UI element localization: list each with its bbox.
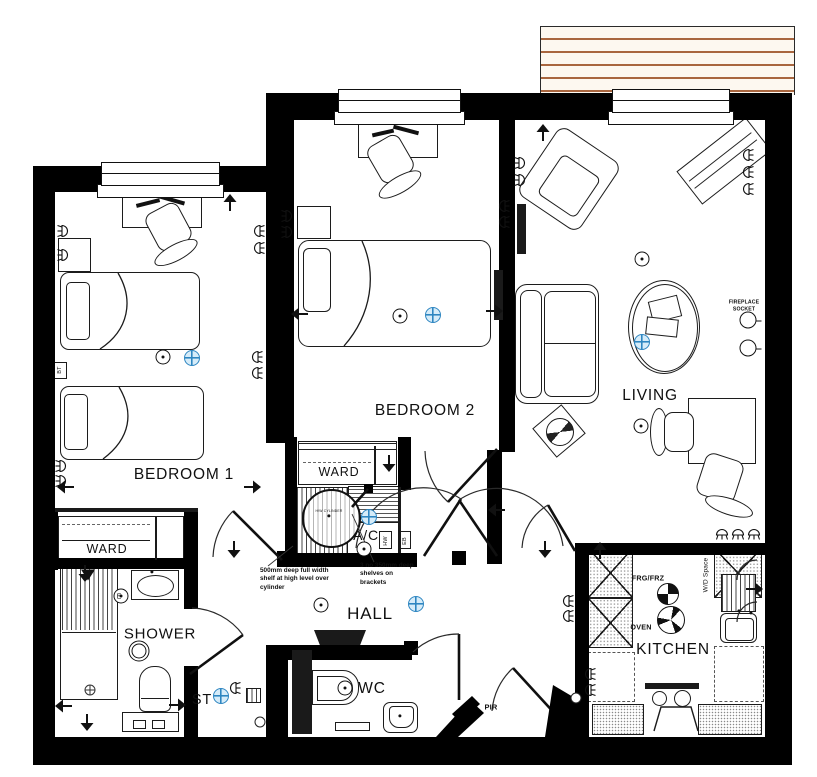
fixture-dot bbox=[398, 714, 401, 717]
wall-lamp-icon bbox=[249, 366, 263, 380]
room-label-bedroom2: BEDROOM 2 bbox=[375, 402, 475, 420]
wall-lamp-icon bbox=[560, 594, 574, 608]
smoke-detector-icon bbox=[425, 307, 441, 323]
wall-lamp-icon bbox=[747, 526, 761, 540]
wall-lamp-icon bbox=[496, 215, 510, 229]
wall-lamp-icon bbox=[731, 526, 745, 540]
fixture-dot bbox=[737, 609, 740, 612]
room-label-hall: HALL bbox=[347, 604, 393, 624]
fireplace-note-line: SOCKET bbox=[729, 306, 759, 313]
wall-lamp-icon bbox=[496, 199, 510, 213]
extractor-fan-icon bbox=[129, 641, 150, 662]
fixture-dot bbox=[327, 514, 330, 517]
label-cylinder: H/W CYLINDER bbox=[315, 509, 342, 513]
floor-plan: BEDROOM 1BEDROOM 2LIVINGKITCHENHALLSHOWE… bbox=[0, 0, 817, 777]
ceiling-light-icon bbox=[634, 419, 649, 434]
socket-arrow-icon bbox=[484, 301, 504, 321]
label-hw: HW bbox=[383, 536, 389, 546]
wall-lamp-icon bbox=[582, 683, 596, 697]
wall-lamp-icon bbox=[281, 209, 295, 223]
wall-lamp-icon bbox=[514, 156, 528, 170]
room-label-bedroom1: BEDROOM 1 bbox=[134, 466, 234, 484]
wall-lamp-icon bbox=[227, 681, 241, 695]
socket-arrow-icon bbox=[224, 539, 244, 559]
socket-arrow-icon bbox=[242, 477, 262, 497]
wall-lamp-icon bbox=[55, 459, 69, 473]
socket-arrow-icon bbox=[54, 696, 74, 716]
fireplace-socket-icon bbox=[740, 312, 757, 329]
label-bt: BT bbox=[57, 366, 63, 373]
extractor-fan-icon bbox=[657, 606, 685, 634]
wall-lamp-icon bbox=[57, 248, 71, 262]
socket-arrow-icon bbox=[75, 563, 95, 583]
wall-lamp-icon bbox=[249, 350, 263, 364]
ceiling-light-icon bbox=[338, 681, 353, 696]
wall-lamp-icon bbox=[281, 225, 295, 239]
smoke-detector-icon bbox=[634, 334, 650, 350]
wall-lamp-icon bbox=[740, 182, 754, 196]
ceiling-light-icon bbox=[357, 542, 372, 557]
room-label-ward1: WARD bbox=[87, 542, 128, 556]
socket-arrow-icon bbox=[590, 541, 610, 561]
label-frg-frz: FRG/FRZ bbox=[632, 574, 665, 583]
ceiling-light-icon bbox=[393, 309, 408, 324]
generated-layer: BEDROOM 1BEDROOM 2LIVINGKITCHENHALLSHOWE… bbox=[0, 0, 817, 777]
wall-lamp-icon bbox=[740, 165, 754, 179]
ceiling-light-icon bbox=[156, 350, 171, 365]
room-label-shower: SHOWER bbox=[124, 626, 196, 643]
label-fireplace-socket: FIREPLACESOCKET bbox=[729, 300, 759, 313]
shower-drain-icon bbox=[85, 685, 96, 696]
fixture-dot bbox=[749, 611, 752, 614]
socket-arrow-icon bbox=[533, 123, 553, 143]
socket-arrow-icon bbox=[379, 453, 399, 473]
doorbell-icon bbox=[255, 717, 266, 728]
socket-arrow-icon bbox=[167, 695, 187, 715]
annotation-note-shelf: 500mm deep full width shelf at high leve… bbox=[260, 567, 340, 592]
wall-lamp-icon bbox=[514, 173, 528, 187]
label-pir: PIR bbox=[484, 703, 497, 712]
socket-arrow-icon bbox=[220, 193, 240, 213]
ceiling-light-icon bbox=[635, 252, 650, 267]
socket-arrow-icon bbox=[290, 304, 310, 324]
wall-lamp-icon bbox=[560, 609, 574, 623]
wall-lamp-icon bbox=[57, 224, 71, 238]
label-oven: OVEN bbox=[630, 623, 651, 632]
label-e-fan: E bbox=[117, 594, 122, 601]
fireplace-socket-icon bbox=[740, 340, 757, 357]
wall-lamp-icon bbox=[740, 148, 754, 162]
room-label-ac: A/C bbox=[353, 527, 379, 543]
ceiling-light-quartered-icon bbox=[657, 583, 679, 605]
wall-lamp-icon bbox=[715, 526, 729, 540]
smoke-detector-icon bbox=[184, 350, 200, 366]
annotation-note-shelves: 3 no 350mm deep shelves on brackets bbox=[360, 562, 416, 587]
room-label-living: LIVING bbox=[622, 387, 678, 405]
wall-lamp-icon bbox=[55, 474, 69, 488]
room-label-st: ST bbox=[192, 692, 212, 708]
socket-arrow-icon bbox=[77, 712, 97, 732]
smoke-detector-icon bbox=[408, 596, 424, 612]
room-label-kitchen: KITCHEN bbox=[636, 641, 710, 659]
fireplace-note-line: FIREPLACE bbox=[729, 300, 759, 307]
doorbell-icon bbox=[571, 693, 582, 704]
socket-arrow-icon bbox=[744, 579, 764, 599]
wall-lamp-icon bbox=[251, 241, 265, 255]
wall-lamp-icon bbox=[582, 667, 596, 681]
fixture-dot bbox=[150, 570, 153, 573]
socket-arrow-icon bbox=[535, 539, 555, 559]
room-label-wc: WC bbox=[358, 680, 385, 698]
smoke-detector-icon bbox=[361, 509, 377, 525]
room-label-ward2: WARD bbox=[319, 465, 360, 479]
label-eb: EB bbox=[402, 537, 408, 545]
wall-lamp-icon bbox=[251, 224, 265, 238]
ceiling-light-icon bbox=[314, 598, 329, 613]
socket-arrow-icon bbox=[487, 500, 507, 520]
label-wd-space: W/D Space bbox=[703, 558, 710, 593]
